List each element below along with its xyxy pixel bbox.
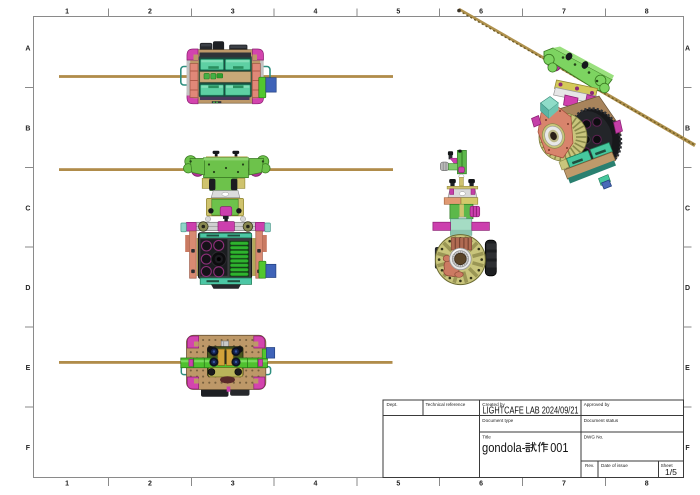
svg-text:Title: Title — [482, 435, 491, 440]
svg-text:LIGHTCAFE LAB 2024/09/21: LIGHTCAFE LAB 2024/09/21 — [483, 406, 579, 417]
svg-text:4: 4 — [314, 9, 318, 16]
svg-text:4: 4 — [314, 481, 318, 488]
svg-text:Technical reference: Technical reference — [426, 402, 466, 407]
svg-text:Rev.: Rev. — [585, 463, 594, 468]
svg-text:1: 1 — [65, 481, 69, 488]
svg-text:A: A — [685, 46, 690, 53]
svg-text:D: D — [25, 285, 30, 292]
svg-text:Document type: Document type — [482, 418, 513, 423]
svg-text:Document status: Document status — [584, 418, 619, 423]
svg-text:C: C — [25, 205, 30, 212]
svg-text:Approved by: Approved by — [584, 402, 610, 407]
svg-text:F: F — [26, 445, 31, 452]
svg-text:5: 5 — [396, 481, 400, 488]
svg-text:001: 001 — [550, 441, 568, 455]
svg-text:C: C — [685, 205, 690, 212]
svg-text:3: 3 — [231, 9, 235, 16]
svg-text:1/5: 1/5 — [665, 467, 677, 477]
svg-text:7: 7 — [562, 9, 566, 16]
svg-text:Date of issue: Date of issue — [601, 463, 628, 468]
svg-text:E: E — [685, 365, 690, 372]
svg-text:1: 1 — [65, 9, 69, 16]
svg-text:A: A — [25, 46, 30, 53]
svg-text:6: 6 — [479, 481, 483, 488]
svg-text:Dept.: Dept. — [387, 402, 398, 407]
svg-text:E: E — [26, 365, 31, 372]
svg-text:B: B — [685, 125, 690, 132]
svg-text:gondola-: gondola- — [482, 441, 526, 455]
svg-text:8: 8 — [645, 9, 649, 16]
svg-text:5: 5 — [396, 9, 400, 16]
svg-text:6: 6 — [479, 9, 483, 16]
svg-text:8: 8 — [645, 481, 649, 488]
svg-text:B: B — [25, 125, 30, 132]
svg-text:3: 3 — [231, 481, 235, 488]
svg-text:D: D — [685, 285, 690, 292]
svg-text:2: 2 — [148, 481, 152, 488]
svg-text:2: 2 — [148, 9, 152, 16]
svg-text:DWG No.: DWG No. — [584, 435, 604, 440]
svg-text:F: F — [685, 445, 690, 452]
svg-text:7: 7 — [562, 481, 566, 488]
